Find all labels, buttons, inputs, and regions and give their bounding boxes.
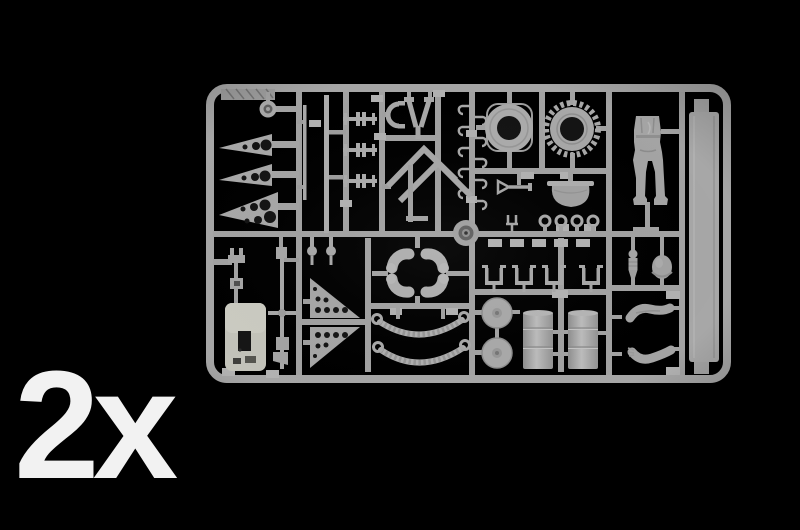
lighting-overlay xyxy=(203,80,735,386)
product-photo: 2x xyxy=(0,0,800,530)
sprue xyxy=(203,80,735,386)
quantity-label: 2x xyxy=(14,348,171,502)
